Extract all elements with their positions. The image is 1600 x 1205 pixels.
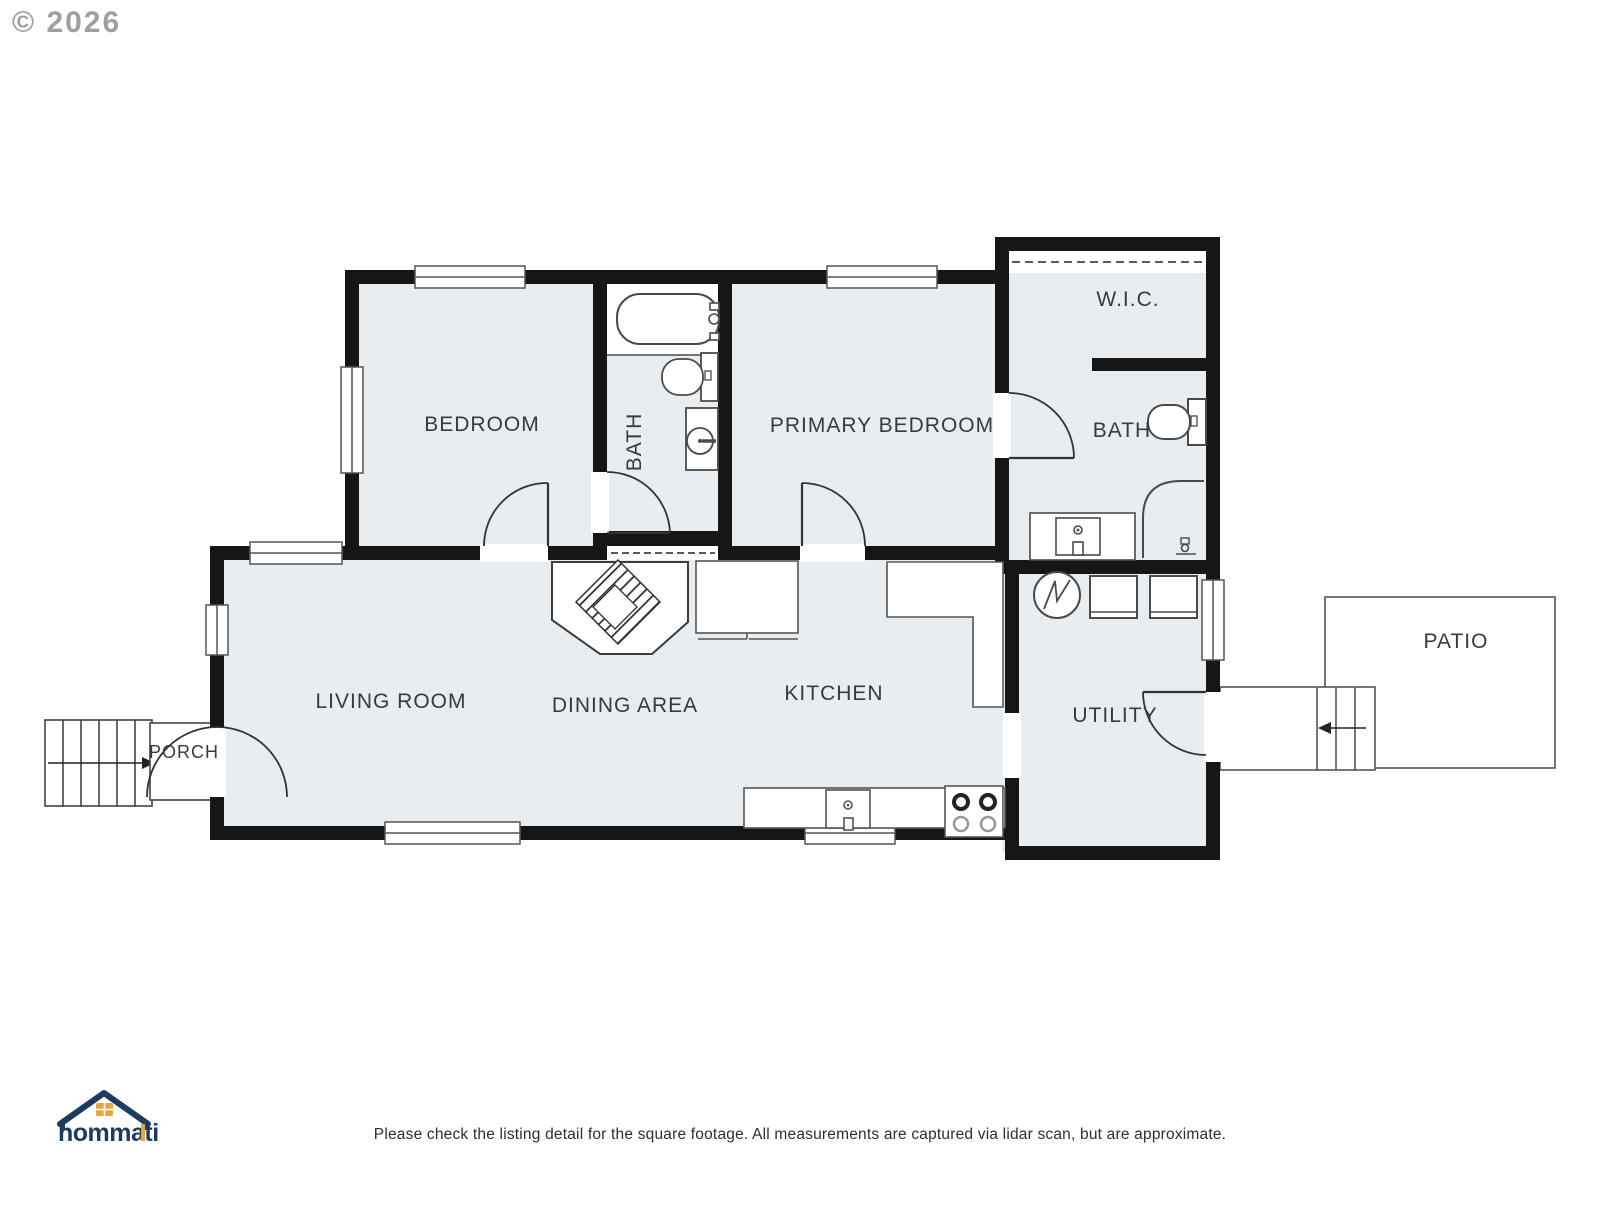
wall-segment (995, 251, 1009, 393)
room-label-wic: W.I.C. (1096, 288, 1159, 311)
bathtub-faucet (709, 303, 719, 340)
window (250, 542, 342, 564)
wall-segment (995, 237, 1220, 251)
wall-segment (995, 458, 1009, 560)
kitchen-sink (826, 790, 870, 830)
wall-segment (342, 546, 480, 560)
bedroom-door-opening (480, 544, 548, 562)
room-label-primary-bedroom: PRIMARY BEDROOM (770, 414, 994, 437)
wall-segment (718, 284, 732, 531)
room-label-living-room: LIVING ROOM (315, 690, 466, 713)
dryer (1150, 576, 1197, 618)
porch-door-opening (208, 727, 226, 797)
utility-fixtures (1034, 572, 1197, 618)
wall-segment (1206, 762, 1220, 860)
wic-partial-wall (1092, 358, 1206, 371)
room-label-bedroom: BEDROOM (424, 413, 540, 436)
toilet (1148, 399, 1206, 445)
stove-cooktop (945, 786, 1003, 837)
vanity-sink (686, 408, 718, 470)
disclaimer-text: Please check the listing detail for the … (0, 1126, 1600, 1144)
window (827, 266, 937, 288)
window (1202, 580, 1224, 660)
window (385, 822, 520, 844)
window (415, 266, 525, 288)
wall-segment (210, 546, 224, 605)
bathtub (617, 294, 719, 344)
wall-segment (995, 560, 1220, 574)
room-label-kitchen: KITCHEN (784, 682, 883, 705)
wall-segment (593, 284, 607, 472)
kitchen-pantry-closet (696, 561, 798, 639)
wall-segment (1005, 846, 1220, 860)
wall-segment (718, 546, 800, 560)
window (341, 367, 363, 473)
vanity-sink (1030, 513, 1135, 560)
primary-bath-door-opening (993, 393, 1011, 458)
wall-segment (210, 655, 224, 727)
room-label-dining-area: DINING AREA (552, 694, 698, 717)
wall-segment (1005, 574, 1019, 713)
floorplan-svg: BEDROOM BATH PRIMARY BEDROOM W.I.C. BATH… (0, 0, 1600, 1200)
washer (1090, 576, 1137, 618)
copyright-watermark: © 2026 (12, 6, 121, 40)
room-label-utility: UTILITY (1072, 704, 1157, 727)
wall-segment (1206, 660, 1220, 692)
window (206, 605, 228, 655)
hall-bath-door-opening (591, 472, 609, 533)
room-label-porch: PORCH (149, 742, 219, 762)
water-heater (1034, 572, 1080, 618)
room-label-hall-bath: BATH (623, 413, 646, 471)
wall-segment (548, 546, 607, 560)
primary-bedroom-door-opening (800, 544, 865, 562)
room-label-patio: PATIO (1424, 630, 1489, 653)
wall-segment (865, 546, 1009, 560)
utility-door-opening (1204, 692, 1222, 762)
floorplan-page: { "watermark": { "copyright": "© 2026" }… (0, 0, 1600, 1200)
wall-segment (1206, 251, 1220, 580)
room-label-primary-bath: BATH (1093, 419, 1151, 442)
kitchen-utility-opening (1003, 713, 1021, 778)
